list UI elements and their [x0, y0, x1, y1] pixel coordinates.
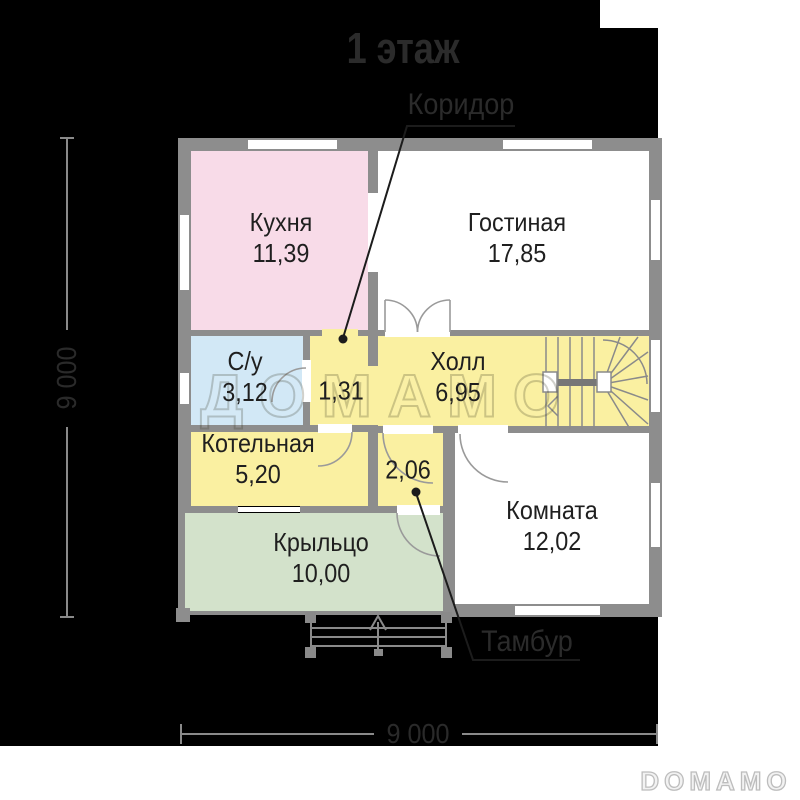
wall-bath-corridor-upper	[303, 336, 310, 360]
window-room-bottom	[515, 606, 600, 615]
label-corridor-area: 1,31	[318, 376, 364, 407]
label-bathroom: С/у3,12	[222, 346, 268, 408]
wall-left	[178, 138, 191, 513]
label-room: Комната12,02	[506, 495, 598, 557]
wall-kitchen-living-lower	[368, 272, 378, 336]
wall-left-porch	[178, 513, 185, 615]
dim-bottom-line-right	[462, 733, 658, 735]
wall-porch-top-b	[300, 506, 397, 513]
dim-left-line-lower	[66, 427, 68, 617]
dim-bottom-line-left	[181, 733, 374, 735]
label-porch: Крыльцо10,00	[273, 527, 368, 589]
dim-left-line-upper	[66, 138, 68, 330]
wall-porch-bottom	[185, 611, 443, 615]
label-kitchen: Кухня11,39	[250, 207, 313, 269]
window-stairs-right	[651, 340, 660, 412]
window-living-top	[503, 140, 592, 149]
window-room-right	[651, 483, 660, 547]
wall-tambour-room	[443, 433, 455, 611]
label-hall: Холл6,95	[430, 346, 485, 408]
porch-corner-post	[176, 608, 190, 622]
window-boiler-porch	[238, 507, 300, 512]
domamo-logo: DOMAMO	[636, 766, 796, 797]
corridor-callout-label: Коридор	[408, 88, 515, 122]
window-kitchen-left	[180, 215, 189, 290]
wall-boiler-tambour	[368, 425, 378, 513]
wall-porch-top-a	[178, 506, 238, 513]
door-gap-tambour-porch	[397, 505, 440, 515]
window-living-right	[651, 200, 660, 260]
dim-left-value: 9 000	[51, 346, 83, 409]
wall-porch-top-c	[440, 506, 455, 513]
floor-plan-page: { "title": "1 этаж", "watermark": "ДОМАМ…	[0, 0, 800, 800]
wall-living-bottom-right	[450, 330, 649, 336]
tambour-callout-label: Тамбур	[481, 625, 573, 659]
door-gap-living-double	[385, 329, 450, 337]
dim-bottom-value: 9 000	[386, 718, 449, 750]
dim-bottom-tick-left	[180, 724, 182, 744]
label-living: Гостиная17,85	[468, 207, 566, 269]
page-title: 1 этаж	[347, 24, 460, 74]
dim-bottom-tick-right	[656, 724, 658, 744]
wall-kitchen-living-upper	[368, 151, 378, 193]
label-tambour-area: 2,06	[385, 455, 431, 486]
dim-left-tick-top	[60, 137, 74, 139]
window-kitchen-top	[248, 140, 337, 149]
dim-left-tick-bottom	[60, 616, 74, 618]
opening-kitchen-corridor	[322, 329, 358, 337]
window-bathroom-left	[180, 373, 189, 404]
label-boiler: Котельная5,20	[201, 428, 314, 490]
opening-kitchen-living	[368, 193, 378, 272]
